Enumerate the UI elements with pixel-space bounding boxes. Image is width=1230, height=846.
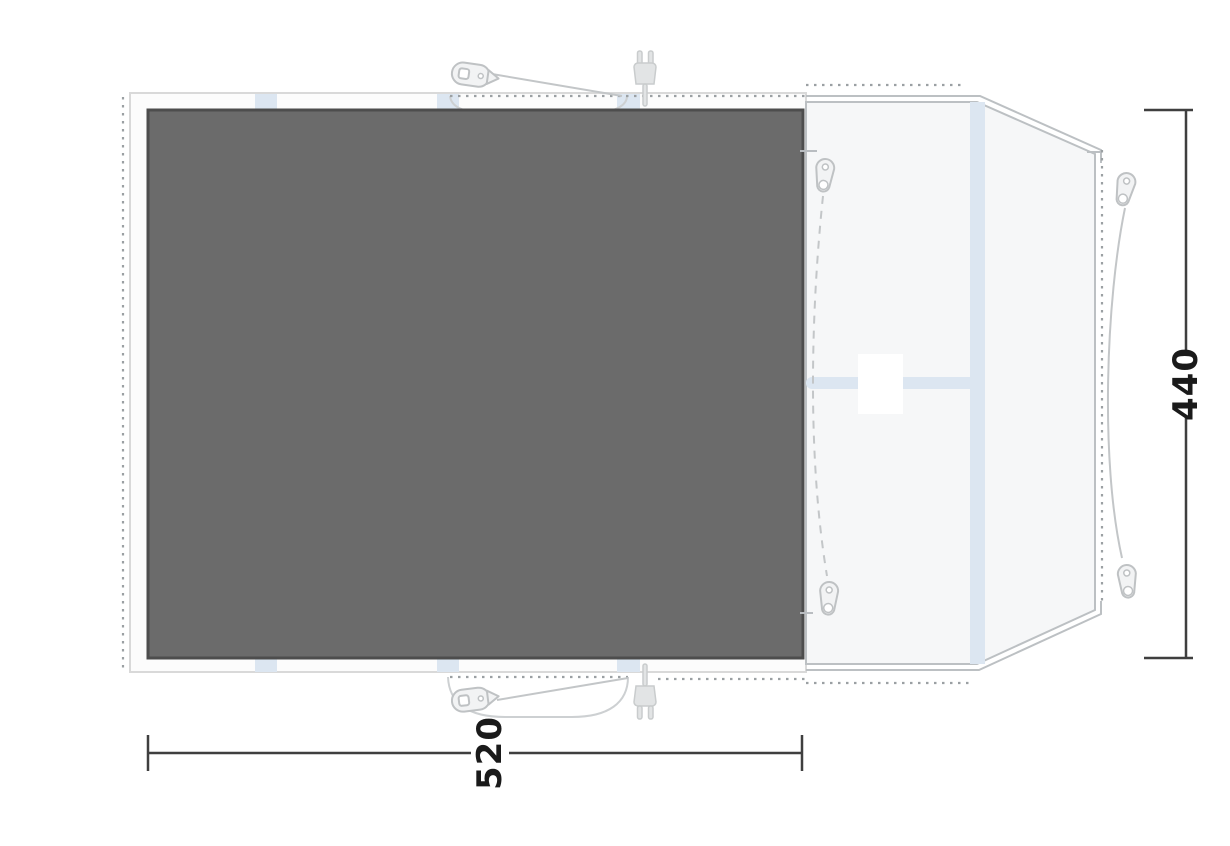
zipper-pull-icon [450, 61, 500, 89]
dimension-height-label: 440 [1166, 347, 1206, 421]
pole-band [255, 94, 277, 110]
tent-front-section [806, 96, 1101, 670]
footprint-diagram: 520 440 [0, 0, 1230, 846]
diagram-canvas: 520 440 [0, 0, 1230, 846]
pole-band [437, 658, 459, 672]
cord-bottom-left [497, 678, 628, 700]
window-panel [858, 354, 903, 414]
zipper-track-outer [1108, 208, 1125, 558]
zipper-pull-icon [1117, 564, 1137, 598]
dimension-width-label: 520 [470, 716, 510, 790]
zipper-pull-icon [1113, 171, 1137, 207]
groundsheet-area [148, 110, 803, 658]
pole-band [255, 658, 277, 672]
zipper-pull-icon [451, 685, 500, 713]
pole-band [437, 94, 459, 110]
pole-band [617, 658, 640, 672]
